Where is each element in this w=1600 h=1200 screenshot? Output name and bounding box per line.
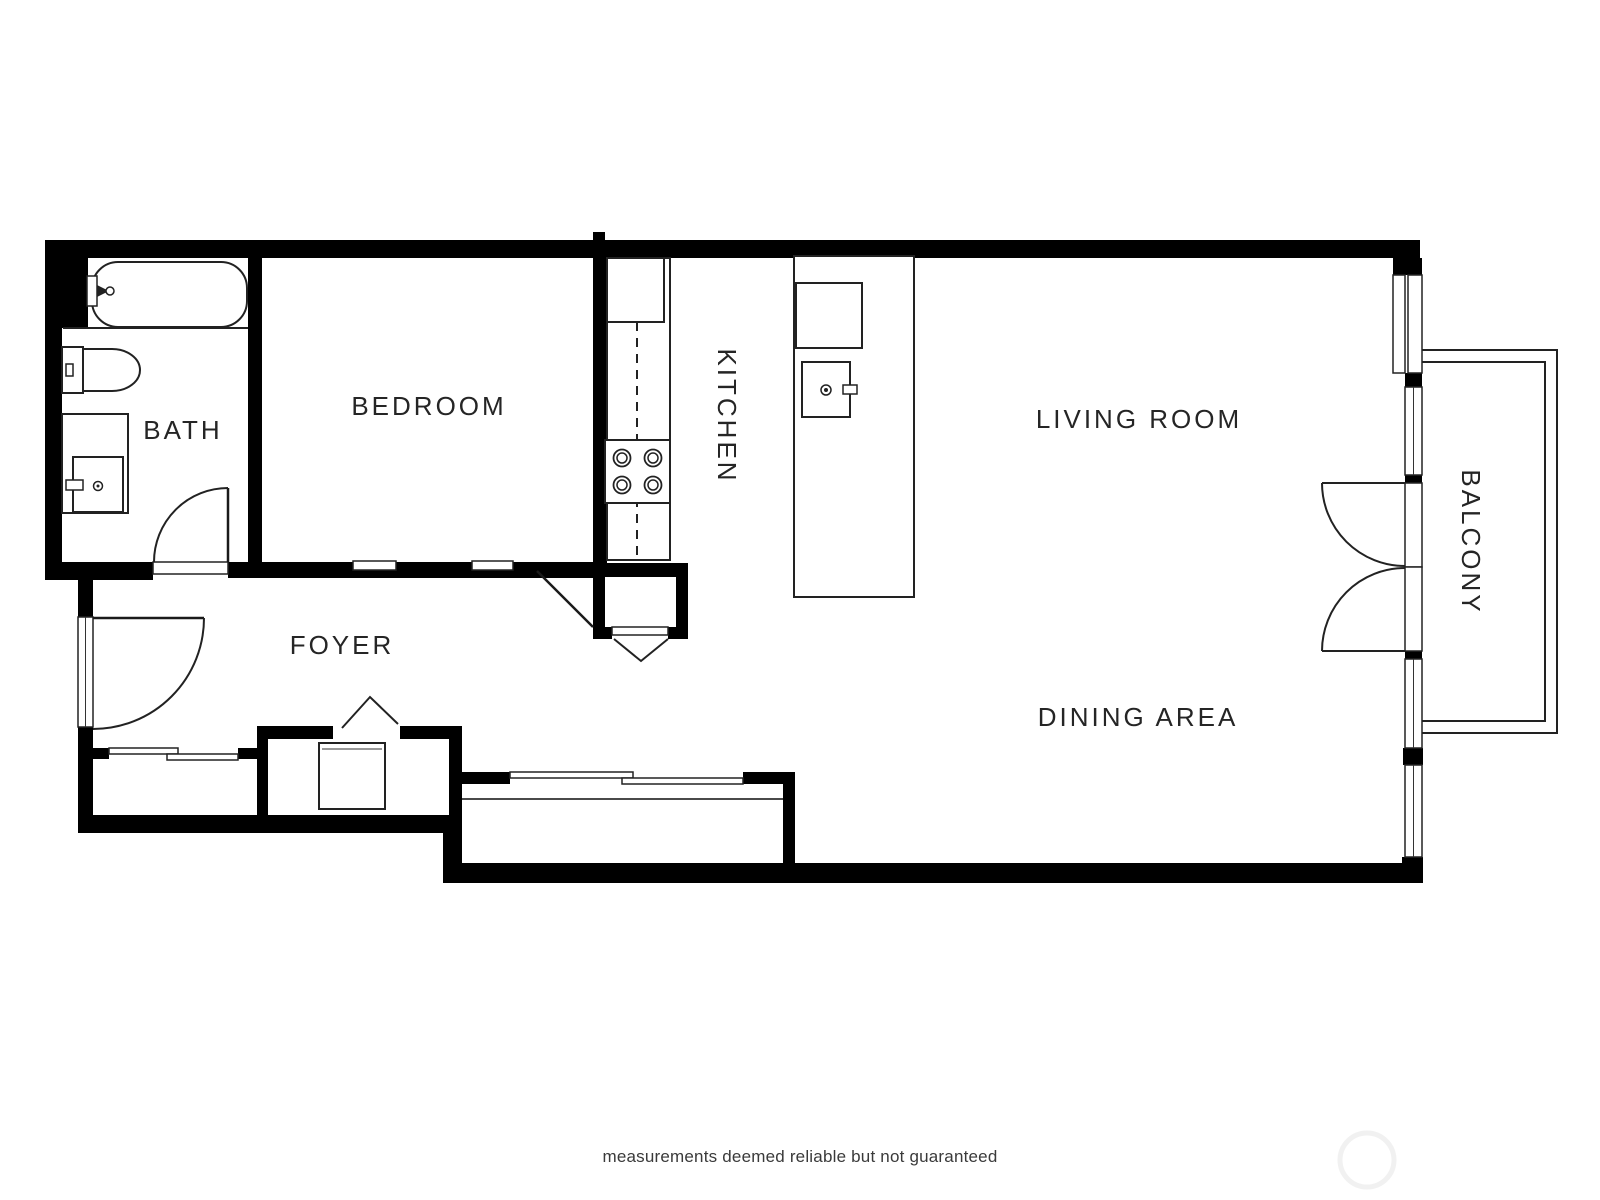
wall-left <box>45 240 62 580</box>
window-wall <box>1322 275 1422 857</box>
walls <box>45 232 1423 883</box>
alcove-bifold-door <box>342 697 398 728</box>
wall-alcove-top-left <box>257 726 333 739</box>
watermark-circle-icon <box>1340 1133 1394 1187</box>
wall-door-jamb-bottom <box>1405 651 1422 659</box>
foyer-closet-slider-panel-2 <box>167 754 238 760</box>
french-door-swing-arc-top <box>1322 483 1405 566</box>
wall-tub-plumbing <box>62 240 88 328</box>
vanity-drain-dot <box>97 485 100 488</box>
vanity-faucet <box>66 480 83 490</box>
french-door-panel-2 <box>1405 567 1422 651</box>
pantry-bifold-door <box>614 639 668 661</box>
dining-closet-slider-panel-2 <box>622 778 743 784</box>
pantry-threshold <box>612 627 668 635</box>
wall-bath-bedroom <box>248 255 262 578</box>
wall-top-right-corner <box>1393 258 1422 275</box>
bedroom-sliding-panel-1 <box>353 561 396 570</box>
dining-closet <box>462 772 783 799</box>
bedroom-sliding-panel-2 <box>472 561 513 570</box>
wall-dining-closet-stub-left <box>462 772 510 784</box>
window-panel-a2 <box>1408 275 1422 373</box>
bathtub-faucet <box>87 276 97 306</box>
label-bath: BATH <box>143 415 222 445</box>
bath-door-threshold <box>153 562 228 574</box>
wall-bedroom-bottom <box>228 562 593 578</box>
wall-bottom-lower <box>449 863 1423 883</box>
wall-foyer-left-upper <box>78 580 93 618</box>
wall-pantry-stub-right <box>668 627 688 639</box>
bathtub <box>92 262 247 327</box>
wall-closet-stub-right <box>238 748 257 759</box>
balcony-structure <box>1422 350 1557 733</box>
wall-door-jamb-top <box>1405 475 1422 483</box>
wall-bottom-right-corner <box>1402 857 1423 883</box>
toilet-bowl <box>83 349 140 391</box>
french-door-panel-1 <box>1405 483 1422 567</box>
island-sink-drain-dot <box>824 388 828 392</box>
label-bedroom: BEDROOM <box>351 391 506 421</box>
kitchen-door-leaf <box>537 571 593 627</box>
balcony-outer-rail <box>1422 350 1557 733</box>
bath-door-swing-arc <box>154 488 228 562</box>
disclaimer-caption: measurements deemed reliable but not gua… <box>603 1147 998 1166</box>
wall-window-pier <box>1403 748 1423 765</box>
wall-closet-stub-left <box>93 748 109 759</box>
wall-alcove-left <box>257 726 268 815</box>
label-balcony: BALCONY <box>1456 469 1486 614</box>
label-kitchen: KITCHEN <box>712 348 742 483</box>
label-living-room: LIVING ROOM <box>1036 404 1242 434</box>
bathtub-spout-tip <box>106 287 114 295</box>
dining-closet-slider-panel-1 <box>510 772 633 778</box>
wall-pantry-left <box>593 563 605 638</box>
wall-kitchen-partition <box>593 255 607 563</box>
wall-kitchen-notch <box>593 232 605 241</box>
foyer-closet-slider-panel-1 <box>109 748 178 754</box>
island-refrigerator <box>796 283 862 348</box>
refrigerator <box>607 258 664 322</box>
toilet-flush-button <box>66 364 73 376</box>
wall-bottom-upper <box>78 815 449 833</box>
laundry-appliance <box>319 743 385 809</box>
island-sink-faucet <box>843 385 857 394</box>
entry-door-swing-arc <box>93 618 204 729</box>
wall-pantry-top <box>593 563 688 577</box>
french-door-swing-arc-bottom <box>1322 568 1405 651</box>
label-dining-area: DINING AREA <box>1038 702 1239 732</box>
floor-plan: BATH BEDROOM KITCHEN LIVING ROOM DINING … <box>0 0 1600 1200</box>
wall-pantry-right <box>676 563 688 638</box>
stove <box>605 440 670 503</box>
window-panel-a1 <box>1393 275 1405 373</box>
wall-bath-bottom <box>45 562 153 580</box>
label-foyer: FOYER <box>290 630 395 660</box>
wall-window-mullion <box>1405 373 1422 387</box>
wall-dining-closet-right <box>783 772 795 865</box>
wall-pantry-stub-left <box>593 627 612 639</box>
